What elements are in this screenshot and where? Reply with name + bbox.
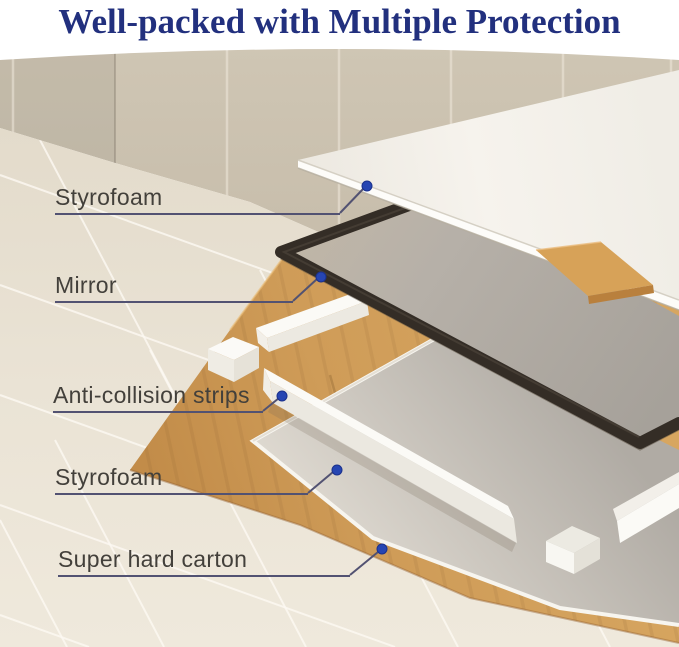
callout-dot — [377, 544, 387, 554]
callout-label: Super hard carton — [58, 546, 247, 572]
callout-label: Styrofoam — [55, 184, 163, 210]
callout-styrofoam-top: Styrofoam — [55, 184, 340, 215]
callout-label: Styrofoam — [55, 464, 163, 490]
callout-mirror: Mirror — [55, 272, 293, 303]
product-packaging-infographic: Well-packed with Multiple Protection Sty… — [0, 0, 679, 647]
page-title: Well-packed with Multiple Protection — [0, 0, 679, 46]
callout-styrofoam-bottom: Styrofoam — [55, 464, 308, 495]
callout-dot — [332, 465, 342, 475]
callout-label: Anti-collision strips — [53, 382, 250, 408]
callout-dot — [277, 391, 287, 401]
callout-dot — [316, 272, 326, 282]
callout-dot — [362, 181, 372, 191]
callout-super-hard-carton: Super hard carton — [58, 546, 350, 577]
callout-anti-collision-strips: Anti-collision strips — [53, 382, 263, 413]
callout-label: Mirror — [55, 272, 117, 298]
